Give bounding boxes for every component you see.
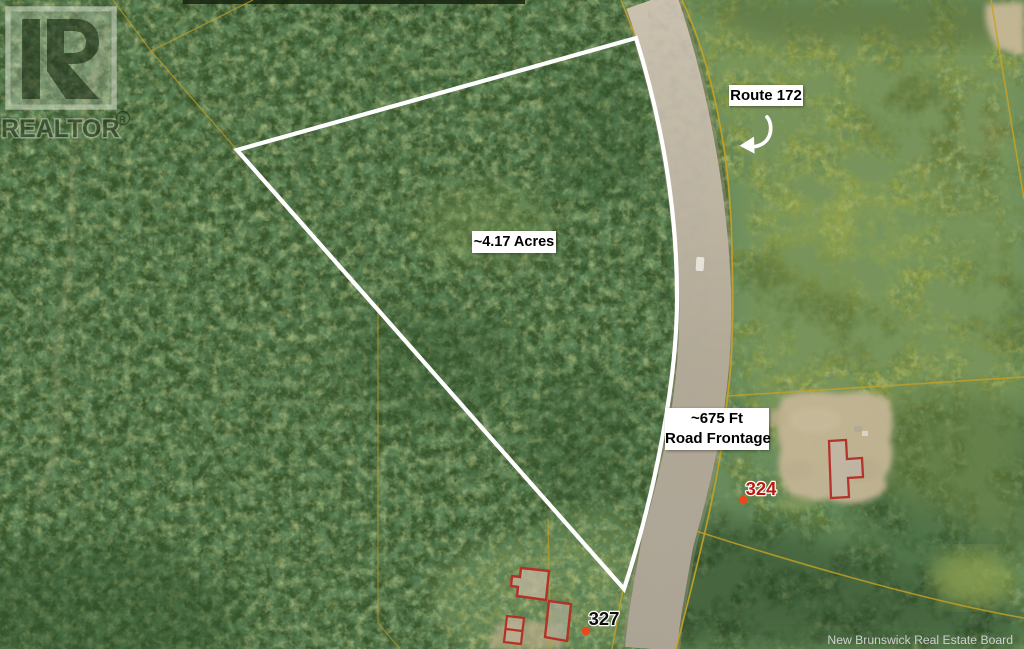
svg-text:327: 327: [589, 608, 620, 629]
svg-text:R: R: [119, 115, 126, 126]
svg-text:REALTOR: REALTOR: [1, 115, 120, 143]
svg-text:324: 324: [746, 478, 778, 499]
